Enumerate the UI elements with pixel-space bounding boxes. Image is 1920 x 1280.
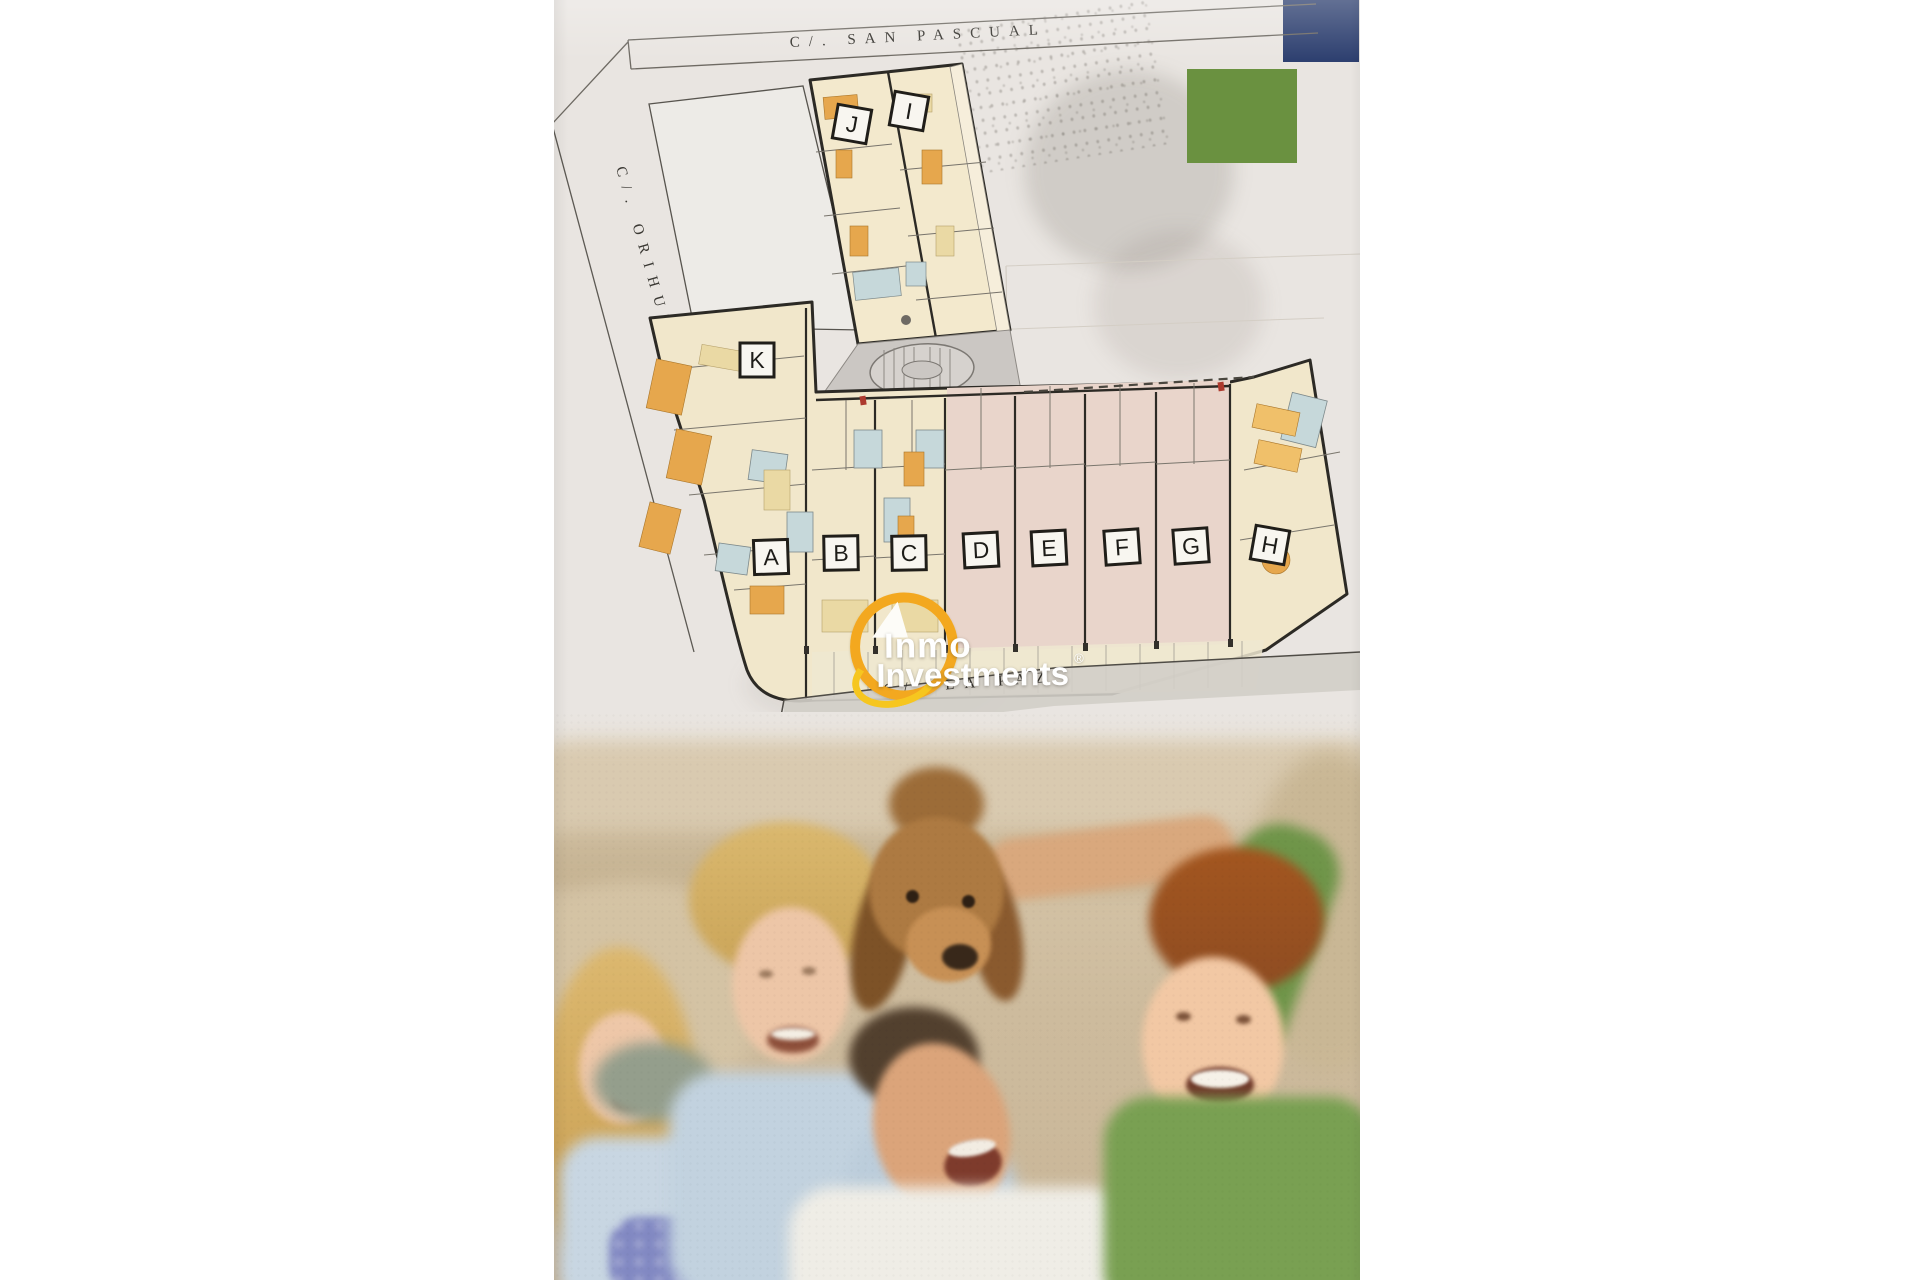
page-background: C/. SAN PASCUAL C/. ORIHUELA [0, 0, 1920, 1280]
unit-label-E: E [1031, 530, 1067, 566]
unit-label-K: K [740, 343, 774, 377]
svg-text:C: C [900, 540, 917, 566]
svg-text:D: D [972, 537, 990, 564]
svg-text:A: A [763, 544, 780, 571]
unit-label-G: G [1173, 528, 1209, 564]
family-photo [554, 712, 1360, 1280]
unit-label-A: A [753, 539, 788, 574]
unit-label-F: F [1104, 529, 1140, 565]
svg-text:F: F [1114, 534, 1130, 561]
courtyard-line [984, 254, 1360, 330]
unit-label-B: B [824, 536, 859, 571]
unit-label-I: I [889, 91, 928, 130]
svg-text:E: E [1041, 535, 1058, 562]
svg-text:G: G [1181, 532, 1201, 559]
door-marker [1217, 382, 1224, 392]
property-brochure-photo: C/. SAN PASCUAL C/. ORIHUELA [554, 0, 1360, 1280]
svg-text:B: B [833, 540, 849, 566]
photo-grain-overlay [554, 712, 1360, 1280]
unit-label-C: C [892, 536, 927, 571]
unit-label-H: H [1250, 525, 1289, 564]
pink-units-zone [947, 380, 1230, 652]
street-label-san-pascual: C/. SAN PASCUAL [789, 22, 1047, 51]
unit-label-D: D [963, 532, 999, 568]
svg-text:K: K [749, 347, 765, 373]
unit-label-J: J [832, 104, 871, 143]
door-marker [859, 396, 866, 406]
